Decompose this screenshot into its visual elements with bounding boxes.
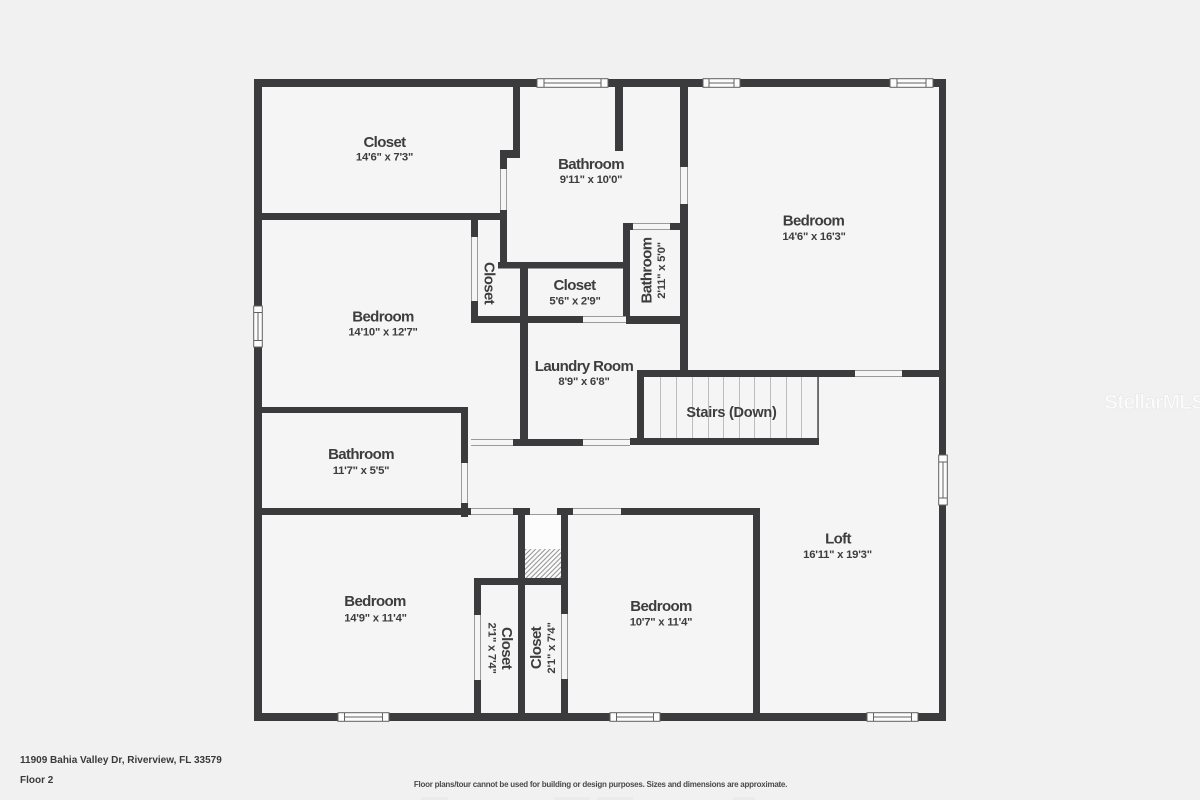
- svg-text:2'1" x 7'4": 2'1" x 7'4": [546, 622, 558, 673]
- svg-text:16'11" x 19'3": 16'11" x 19'3": [803, 549, 872, 561]
- svg-text:Bathroom: Bathroom: [639, 237, 656, 303]
- svg-text:Closet: Closet: [553, 277, 596, 294]
- svg-text:StellarMLS: StellarMLS: [1104, 391, 1200, 414]
- svg-text:14'9" x 11'4": 14'9" x 11'4": [344, 613, 407, 625]
- svg-text:Closet: Closet: [528, 626, 545, 669]
- svg-text:14'6" x 16'3": 14'6" x 16'3": [782, 231, 845, 243]
- svg-text:Loft: Loft: [825, 531, 851, 548]
- svg-text:Floor 2: Floor 2: [20, 775, 54, 786]
- svg-text:5'6" x 2'9": 5'6" x 2'9": [549, 296, 600, 308]
- svg-text:Bedroom: Bedroom: [344, 593, 406, 610]
- svg-text:14'6" x 7'3": 14'6" x 7'3": [356, 152, 413, 164]
- svg-text:2'11" x 5'0": 2'11" x 5'0": [656, 242, 668, 299]
- svg-text:Closet: Closet: [481, 262, 498, 305]
- svg-text:Bedroom: Bedroom: [630, 598, 692, 615]
- svg-text:Bathroom: Bathroom: [558, 156, 624, 173]
- svg-text:Stairs (Down): Stairs (Down): [686, 405, 777, 421]
- svg-text:2'1" x 7'4": 2'1" x 7'4": [486, 622, 498, 673]
- svg-text:Bedroom: Bedroom: [352, 309, 414, 326]
- svg-text:9'11" x 10'0": 9'11" x 10'0": [560, 174, 623, 186]
- svg-text:14'10" x 12'7": 14'10" x 12'7": [348, 327, 417, 339]
- svg-text:8'9" x 6'8": 8'9" x 6'8": [558, 376, 609, 388]
- svg-text:11909 Bahia Valley Dr, Rivervi: 11909 Bahia Valley Dr, Riverview, FL 335…: [20, 755, 222, 766]
- svg-text:10'7" x 11'4": 10'7" x 11'4": [630, 617, 693, 629]
- svg-text:Bedroom: Bedroom: [783, 213, 845, 230]
- svg-text:Floor plans/tour cannot be use: Floor plans/tour cannot be used for buil…: [414, 780, 787, 789]
- svg-text:11'7" x 5'5": 11'7" x 5'5": [333, 465, 390, 477]
- svg-text:Bathroom: Bathroom: [328, 446, 394, 463]
- svg-text:Laundry Room: Laundry Room: [535, 358, 634, 375]
- svg-text:Closet: Closet: [498, 627, 515, 670]
- svg-text:Closet: Closet: [363, 134, 406, 151]
